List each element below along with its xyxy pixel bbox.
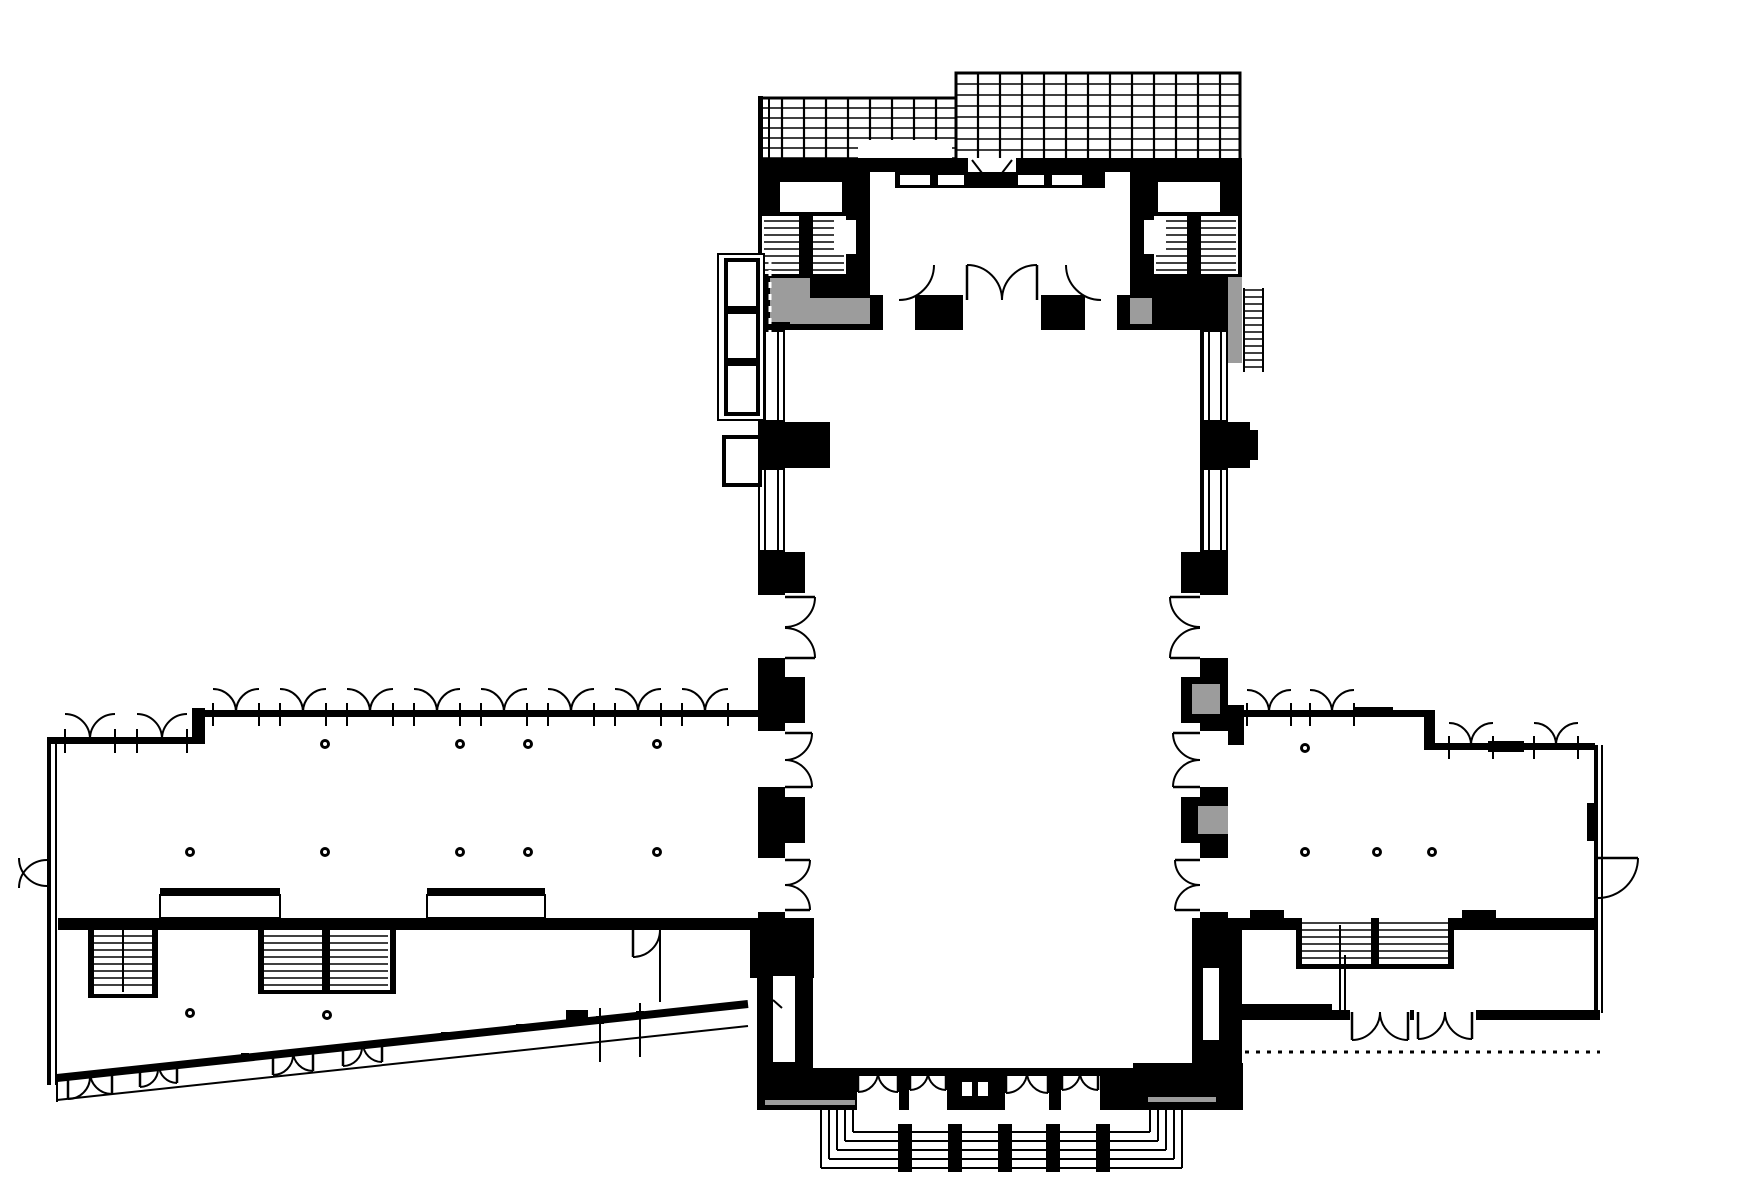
column-center xyxy=(323,742,327,746)
right-core-stair-rail xyxy=(1187,212,1201,276)
north-door-swing xyxy=(638,689,661,712)
right-door-swing xyxy=(1170,597,1200,627)
wall-step xyxy=(1424,710,1435,750)
wall-jog xyxy=(192,708,205,744)
stair-a-rail xyxy=(152,930,158,998)
left-core-slot xyxy=(834,220,856,254)
column-center xyxy=(188,850,192,854)
sloped-south-wall xyxy=(57,1004,748,1078)
junction-block xyxy=(1228,705,1244,745)
right-corner-block xyxy=(1133,1063,1243,1110)
threshold-gray xyxy=(765,1100,855,1105)
annex-box xyxy=(726,364,758,414)
right-pier-gray xyxy=(1198,806,1228,834)
vestibule-corner-door-swing xyxy=(899,265,934,300)
north-door-swing xyxy=(1310,690,1332,712)
north-door-swing xyxy=(1332,690,1354,712)
main-stair-base xyxy=(1296,964,1454,969)
slope-block xyxy=(566,1010,588,1024)
clerestory-window xyxy=(900,175,930,185)
left-core-stair-rail xyxy=(799,212,813,276)
south-center-slot xyxy=(962,1082,972,1096)
north-door-swing xyxy=(1247,690,1269,712)
step-baluster xyxy=(948,1124,962,1172)
north-door-swing xyxy=(1556,723,1578,745)
right-pier xyxy=(1200,422,1250,468)
roof-canopy-grid xyxy=(758,73,1240,162)
vestibule-double-door-swing xyxy=(1002,265,1037,300)
north-door-swing xyxy=(1269,690,1291,712)
right-door-swing xyxy=(1175,885,1200,910)
right-door-swing xyxy=(1170,628,1200,658)
left-door-swing xyxy=(785,760,812,787)
left-wing xyxy=(19,689,760,1102)
wall-tab xyxy=(1250,910,1284,918)
platform xyxy=(427,895,545,918)
right-door-bay xyxy=(1200,858,1228,912)
left-window-bay xyxy=(760,470,783,550)
wall-tab xyxy=(1355,707,1393,717)
stair-b-base xyxy=(258,990,396,994)
left-door-swing xyxy=(785,597,815,627)
north-door-swing xyxy=(213,689,236,712)
right-pier-nub xyxy=(1246,430,1258,460)
left-door-bay xyxy=(758,858,785,912)
left-door-bay xyxy=(758,731,785,787)
right-door-swing xyxy=(1175,860,1200,885)
column-center xyxy=(458,742,462,746)
north-door-swing xyxy=(65,714,90,739)
stair-b-rail xyxy=(390,930,396,994)
west-wall-inner xyxy=(55,737,57,1085)
vestibule-double-door-swing xyxy=(967,265,1002,300)
annex-box xyxy=(724,437,760,485)
clerestory-window xyxy=(1052,175,1082,185)
vestibule-door-gap-center xyxy=(963,295,1041,330)
north-door-swing xyxy=(370,689,393,712)
slope-tick xyxy=(516,1024,524,1032)
column-center xyxy=(655,742,659,746)
stair-a-rail xyxy=(88,930,94,998)
south-wall-thick xyxy=(1242,1004,1332,1020)
east-exterior-door-swing xyxy=(1598,858,1638,898)
right-pier-gray xyxy=(1192,684,1220,714)
column-center xyxy=(526,850,530,854)
clerestory-window xyxy=(938,175,964,185)
south-center-slot xyxy=(978,1082,988,1096)
left-pier xyxy=(758,552,805,593)
east-wall-nub xyxy=(1587,803,1596,841)
east-wall-inner xyxy=(1601,745,1603,1013)
stair-b-mid-rail xyxy=(322,930,330,990)
left-core-room xyxy=(780,182,842,212)
floor-plan-drawing xyxy=(0,0,1750,1182)
slope-tick xyxy=(441,1032,449,1040)
north-door-swing xyxy=(571,689,594,712)
wall-tab xyxy=(1488,741,1524,752)
south-center-pier xyxy=(947,1068,1005,1110)
right-core-room xyxy=(1158,182,1220,212)
right-door-bay xyxy=(1200,731,1228,787)
column-center xyxy=(458,850,462,854)
platform-edge xyxy=(160,888,280,895)
slope-tick xyxy=(241,1053,249,1061)
column-center xyxy=(188,1011,192,1015)
north-door-swing xyxy=(504,689,527,712)
left-door-swing xyxy=(785,885,810,910)
main-stair-rail xyxy=(1296,918,1302,968)
column-center xyxy=(323,850,327,854)
north-door-swing xyxy=(303,689,326,712)
north-door-swing xyxy=(347,689,370,712)
north-door-swing xyxy=(437,689,460,712)
step-baluster xyxy=(1046,1124,1060,1172)
interior-wall xyxy=(58,918,758,930)
north-door-swing xyxy=(481,689,504,712)
south-post xyxy=(899,1068,909,1110)
left-corner-slot xyxy=(773,976,795,1062)
right-wing xyxy=(1212,690,1638,1052)
step-baluster xyxy=(998,1124,1012,1172)
step-baluster xyxy=(1096,1124,1110,1172)
threshold-gray xyxy=(1148,1097,1216,1102)
north-door-swing xyxy=(137,714,162,739)
left-pier xyxy=(758,797,805,843)
room-door-swing xyxy=(633,930,660,957)
stair-a-base xyxy=(88,994,158,998)
stair-b-rail xyxy=(258,930,264,994)
north-door-swing xyxy=(90,714,115,739)
left-door-swing xyxy=(785,628,815,658)
annex-box xyxy=(726,312,758,360)
floor-plan xyxy=(0,0,1750,1182)
step-baluster xyxy=(898,1124,912,1172)
platform xyxy=(160,895,280,918)
column-center xyxy=(1375,850,1379,854)
wall-tab xyxy=(1462,910,1496,918)
north-wall-high xyxy=(205,710,760,717)
right-core-gray-strip xyxy=(1228,277,1242,363)
west-exterior-door-swing xyxy=(19,860,47,888)
right-pier xyxy=(1181,552,1228,593)
right-corner-slot xyxy=(1203,968,1219,1040)
north-wall-high xyxy=(1242,710,1432,717)
platform-edge xyxy=(427,888,545,895)
right-door-swing xyxy=(1173,733,1200,760)
north-door-swing xyxy=(280,689,303,712)
left-door-swing xyxy=(785,860,810,885)
south-post xyxy=(1049,1068,1061,1110)
left-door-swing xyxy=(785,733,812,760)
north-door-swing xyxy=(548,689,571,712)
north-door-swing xyxy=(414,689,437,712)
entrance-steps xyxy=(821,1108,1182,1172)
left-corner-block xyxy=(750,918,814,978)
right-window-bay xyxy=(1204,332,1226,420)
south-pier xyxy=(1100,1068,1133,1110)
right-door-bay xyxy=(1200,595,1228,658)
left-pier xyxy=(758,677,805,723)
north-wall-low xyxy=(47,737,205,744)
column-center xyxy=(1430,850,1434,854)
right-window-bay xyxy=(1204,470,1226,550)
north-door-swing xyxy=(682,689,705,712)
north-door-swing xyxy=(162,714,187,739)
north-door-swing xyxy=(705,689,728,712)
main-stair-mid-rail xyxy=(1371,918,1379,964)
north-door-swing xyxy=(615,689,638,712)
canopy-left-edge-inner xyxy=(768,98,770,160)
annex-box xyxy=(726,260,758,308)
column-center xyxy=(1303,746,1307,750)
west-wall xyxy=(47,737,51,1085)
main-stair-rail xyxy=(1448,918,1454,968)
left-pier xyxy=(758,422,830,468)
clerestory-window xyxy=(1018,175,1044,185)
left-door-bay xyxy=(758,595,785,658)
vestibule-corner-door-swing xyxy=(1066,265,1101,300)
north-door-swing xyxy=(1534,723,1556,745)
column-center xyxy=(655,850,659,854)
column-center xyxy=(526,742,530,746)
column-center xyxy=(1303,850,1307,854)
north-door-swing xyxy=(236,689,259,712)
right-core-slot xyxy=(1144,220,1166,254)
right-door-swing xyxy=(1173,760,1200,787)
north-door-swing xyxy=(1449,723,1471,745)
canopy-left-edge xyxy=(758,96,763,162)
column-center xyxy=(325,1013,329,1017)
east-exterior-ladder xyxy=(1244,288,1263,372)
east-wall xyxy=(1594,745,1598,1013)
central-hall xyxy=(750,158,1258,1110)
